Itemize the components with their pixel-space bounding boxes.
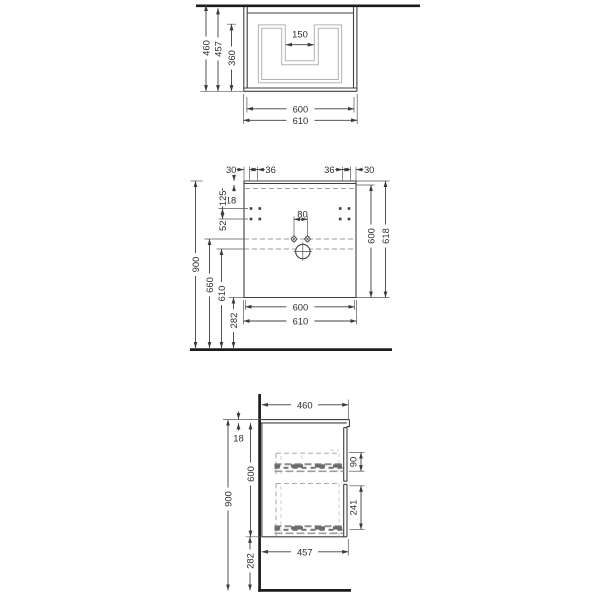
dim-label-depth-460: 460 xyxy=(201,40,212,56)
dim-label-clearance: 282 xyxy=(228,313,239,329)
mounting-hole xyxy=(348,218,351,221)
dim-label-depth: 460 xyxy=(297,399,313,410)
front-view: 30 36 36 30 18 125 52 80 xyxy=(190,164,392,350)
dim-label-hole-offset: 125 xyxy=(217,190,228,206)
dim-label-body-height: 600 xyxy=(245,466,256,482)
fixing-point-right xyxy=(305,236,311,242)
dim-label-height-with-top: 618 xyxy=(380,228,391,244)
extension-ticks-top xyxy=(244,167,356,181)
mounting-hole xyxy=(250,207,253,210)
dim-label-width-inner: 600 xyxy=(293,301,309,312)
dim-label-width-610: 610 xyxy=(293,115,309,126)
top-view: 150 460 457 360 600 610 xyxy=(196,5,420,126)
drawer-box-hidden-lines xyxy=(276,453,339,536)
dim-label-bottom-depth: 457 xyxy=(297,546,313,557)
dim-label-spacing-right: 36 xyxy=(324,164,334,175)
dim-label-cutout-width: 150 xyxy=(292,28,308,39)
dim-label-offset-right: 30 xyxy=(364,164,374,175)
dim-label-width-600: 600 xyxy=(293,103,309,114)
dim-label-drawer-gap-upper: 90 xyxy=(347,457,358,467)
dim-label-body-height: 600 xyxy=(366,228,377,244)
countertop-nose xyxy=(347,420,350,427)
dim-label-spacing-left: 36 xyxy=(265,164,275,175)
dim-label-drain-height: 610 xyxy=(216,286,227,302)
dim-label-clearance: 282 xyxy=(245,553,256,569)
mounting-hole xyxy=(348,207,351,210)
drawer-runner-lower xyxy=(275,526,344,533)
fixing-point-left xyxy=(291,236,297,242)
dim-label-depth-457: 457 xyxy=(213,41,224,57)
cabinet-outline xyxy=(244,7,357,91)
drawer-box-hidden-lines-faint xyxy=(281,450,339,536)
mounting-hole xyxy=(339,218,342,221)
dim-label-tap-spacing: 80 xyxy=(297,209,307,220)
mounting-hole xyxy=(250,218,253,221)
dim-label-hole-spacing: 52 xyxy=(217,221,228,231)
dim-label-offset-left: 30 xyxy=(226,164,236,175)
mounting-hole xyxy=(259,218,262,221)
dim-label-top-thickness: 18 xyxy=(233,432,243,443)
side-view: 460 18 600 900 282 90 241 457 xyxy=(223,394,365,592)
drawer-fronts xyxy=(344,427,347,537)
dim-label-basin-depth-360: 360 xyxy=(226,50,237,66)
vanity-unit-drawing: 150 460 457 360 600 610 xyxy=(0,0,600,600)
drawer-runner-upper xyxy=(275,464,344,471)
dim-label-drawer-gap-lower: 241 xyxy=(347,500,358,516)
dim-label-trap-height: 660 xyxy=(204,277,215,293)
technical-drawing-canvas: 150 460 457 360 600 610 xyxy=(0,0,600,600)
dim-label-width-outer: 610 xyxy=(293,316,309,327)
dim-label-total-height: 900 xyxy=(190,257,201,273)
dim-label-total-height: 900 xyxy=(223,491,234,507)
mounting-hole xyxy=(259,207,262,210)
mounting-hole xyxy=(339,207,342,210)
